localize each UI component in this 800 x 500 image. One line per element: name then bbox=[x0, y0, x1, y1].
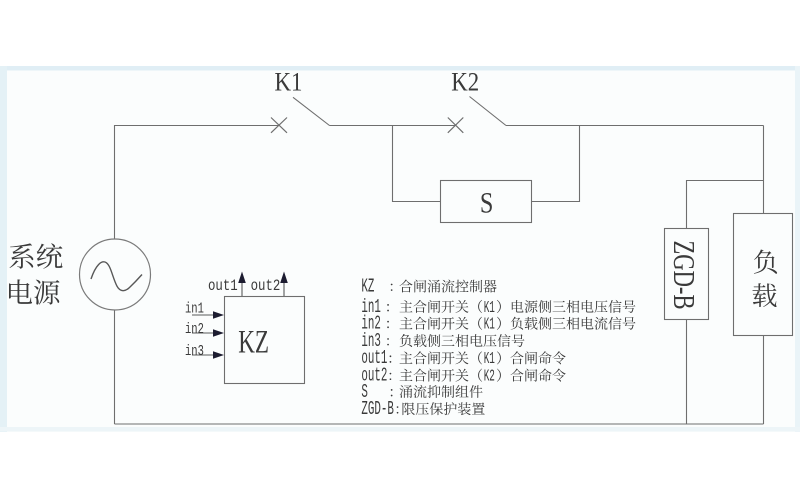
svg-text:ZGD-B: ZGD-B bbox=[667, 240, 701, 309]
svg-text:in1: in1 bbox=[185, 300, 204, 317]
svg-text:ZGD-B: ZGD-B bbox=[361, 398, 393, 420]
svg-text:K1: K1 bbox=[484, 316, 495, 335]
svg-text:K1: K1 bbox=[275, 68, 303, 97]
svg-text:in2: in2 bbox=[185, 320, 204, 337]
svg-text:K2: K2 bbox=[451, 68, 479, 97]
svg-text:out1: out1 bbox=[208, 278, 238, 296]
svg-text:KZ: KZ bbox=[238, 325, 269, 361]
svg-text:out2: out2 bbox=[251, 278, 281, 296]
svg-text:in3: in3 bbox=[185, 342, 204, 359]
svg-text:K1: K1 bbox=[484, 299, 495, 318]
svg-text:S: S bbox=[480, 186, 494, 219]
svg-text:K1: K1 bbox=[484, 351, 495, 370]
svg-text:K2: K2 bbox=[484, 368, 495, 387]
svg-text:KZ: KZ bbox=[361, 275, 374, 297]
